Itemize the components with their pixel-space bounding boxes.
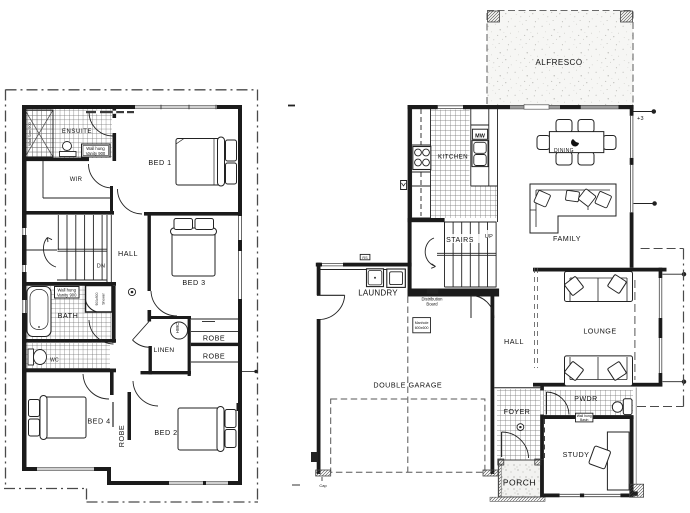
svg-text:ROBE: ROBE bbox=[203, 334, 225, 343]
svg-text:FOYER: FOYER bbox=[504, 409, 531, 416]
svg-text:BED 1: BED 1 bbox=[148, 158, 171, 167]
svg-text:ALFRESCO: ALFRESCO bbox=[535, 58, 582, 67]
svg-text:HALL: HALL bbox=[118, 249, 138, 258]
svg-text:900x900: 900x900 bbox=[95, 292, 99, 305]
svg-text:HWC: HWC bbox=[175, 322, 180, 333]
svg-text:HALL: HALL bbox=[504, 337, 524, 346]
svg-text:LOUNGE: LOUNGE bbox=[583, 327, 616, 336]
svg-text:Shower: Shower bbox=[102, 292, 106, 304]
svg-text:Basin: Basin bbox=[580, 418, 589, 422]
svg-text:ROBE: ROBE bbox=[203, 352, 225, 361]
svg-text:BATH: BATH bbox=[58, 311, 79, 320]
svg-text:WIR: WIR bbox=[70, 177, 83, 183]
svg-text:+3: +3 bbox=[637, 116, 644, 122]
svg-text:BED 2: BED 2 bbox=[154, 428, 177, 437]
svg-text:UP: UP bbox=[485, 234, 493, 240]
svg-text:LINEN: LINEN bbox=[154, 347, 175, 354]
svg-text:Board: Board bbox=[426, 302, 438, 307]
svg-text:RS: RS bbox=[362, 256, 368, 260]
svg-text:ROBE: ROBE bbox=[117, 425, 126, 447]
svg-text:DINING: DINING bbox=[554, 148, 574, 154]
svg-text:DOUBLE GARAGE: DOUBLE GARAGE bbox=[373, 381, 442, 390]
svg-text:STAIRS: STAIRS bbox=[446, 237, 474, 244]
svg-text:Wall Scrn 900: Wall Scrn 900 bbox=[28, 122, 32, 146]
svg-text:KITCHEN: KITCHEN bbox=[438, 154, 468, 161]
svg-text:PWDR: PWDR bbox=[574, 396, 597, 403]
svg-text:PORCH: PORCH bbox=[503, 478, 536, 488]
svg-text:Vanity 900: Vanity 900 bbox=[57, 293, 77, 298]
svg-text:STUDY: STUDY bbox=[563, 450, 590, 459]
svg-text:MW: MW bbox=[475, 134, 486, 140]
svg-text:Manhole: Manhole bbox=[415, 321, 429, 325]
svg-text:600x600: 600x600 bbox=[415, 326, 429, 330]
svg-text:BED 4: BED 4 bbox=[87, 417, 110, 426]
svg-text:Cap: Cap bbox=[319, 483, 327, 488]
svg-text:LAUNDRY: LAUNDRY bbox=[358, 289, 398, 298]
svg-text:DN: DN bbox=[97, 264, 106, 270]
svg-text:ENSUITE: ENSUITE bbox=[62, 129, 92, 135]
svg-text:FAMILY: FAMILY bbox=[553, 234, 581, 243]
svg-text:Vanity 900: Vanity 900 bbox=[86, 151, 106, 156]
svg-text:BED 3: BED 3 bbox=[182, 278, 205, 287]
svg-text:WC: WC bbox=[50, 358, 59, 364]
